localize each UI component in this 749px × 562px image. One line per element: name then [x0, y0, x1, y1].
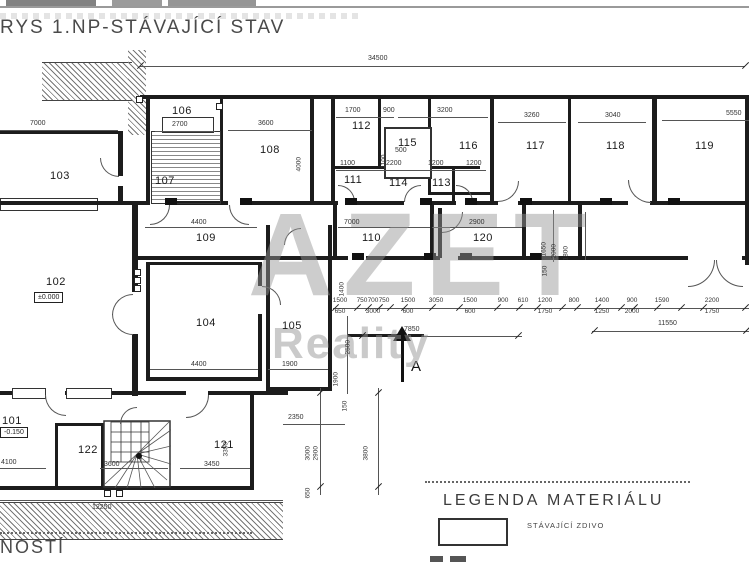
dimension-label: 7850: [404, 326, 420, 333]
dimension-label-vertical: 4000: [297, 157, 304, 171]
dim-line: [578, 122, 646, 123]
dimension-label: 1100: [340, 160, 355, 167]
threshold: [165, 198, 177, 205]
dimension-label: 2700: [172, 121, 188, 128]
dimension-label: 3600: [258, 120, 274, 127]
wall: [310, 98, 314, 203]
chain-dimension: 1500600: [463, 298, 477, 315]
wall: [146, 262, 262, 265]
room-number-label: 102: [46, 276, 66, 288]
dim-line: [662, 120, 749, 121]
door-arc: [628, 180, 651, 203]
threshold: [668, 198, 680, 205]
chain-dimension: 12001750: [538, 298, 552, 315]
marker-square: [116, 490, 123, 497]
dimension-label: 900: [383, 107, 395, 114]
door-arc: [100, 158, 119, 177]
dimension-label-vertical: 1100: [382, 155, 389, 169]
dimension-label-vertical: 1400: [340, 282, 347, 296]
dimension-label: 4100: [1, 459, 17, 466]
dimension-label: 2200: [386, 160, 402, 167]
legend-title: LEGENDA MATERIÁLU: [443, 492, 664, 510]
dim-line: [498, 122, 566, 123]
wall: [146, 98, 150, 203]
wall: [146, 377, 262, 381]
dim-line: [0, 468, 46, 469]
wall: [0, 131, 122, 134]
wall: [55, 423, 104, 426]
dimension-label: 1200: [466, 160, 482, 167]
dimension-label-vertical: 1900: [334, 372, 341, 386]
hatched-wall: [42, 62, 132, 101]
dim-line: [0, 500, 283, 501]
wall: [331, 98, 335, 203]
room-number-label: 120: [473, 232, 493, 244]
room-number-label: 108: [260, 144, 280, 156]
dim-line: [145, 227, 257, 228]
dimension-label: 1900: [282, 361, 298, 368]
room-number-label: 118: [606, 140, 625, 152]
door-arc-double: [688, 260, 715, 287]
dimension-label-vertical: 3350: [224, 442, 231, 456]
room-number-label: 107: [155, 175, 175, 187]
window: [12, 388, 46, 399]
door-arc: [150, 205, 170, 225]
dimension-label-vertical: 2500: [346, 340, 353, 354]
room-number-label: 122: [78, 444, 98, 456]
elevation-marker: -0.150: [0, 427, 28, 438]
door-arc: [186, 395, 209, 418]
dimension-label-vertical: 3000: [306, 446, 313, 460]
dimension-label-vertical: 150: [543, 266, 550, 277]
room-number-label: 104: [196, 317, 216, 329]
marker-square: [216, 103, 223, 110]
dimension-label-vertical: 1650: [542, 242, 549, 256]
door-arc: [120, 407, 137, 424]
dimension-label-vertical: 2000: [552, 244, 559, 258]
staircase-107: [151, 131, 221, 204]
dimension-label: 4400: [191, 361, 207, 368]
ground-hatch: [0, 502, 283, 540]
dim-line: [150, 369, 258, 370]
room-number-label: 111: [344, 174, 362, 186]
dim-line: [336, 117, 394, 118]
bottom-cropped-title: NOSTÍ: [0, 537, 65, 558]
marker-square: [104, 490, 111, 497]
dimension-label-vertical: 3800: [364, 446, 371, 460]
dimension-label: 12250: [92, 504, 111, 511]
legend-item-label: STÁVAJÍCÍ ZDIVO: [527, 521, 604, 530]
room-number-label: 101: [2, 415, 22, 427]
dim-line: [398, 117, 488, 118]
floorplan-canvas: RYS 1.NP-STÁVAJÍCÍ STAV: [0, 0, 749, 562]
room-number-label: 103: [50, 170, 70, 182]
dimension-label: 7000: [30, 120, 46, 127]
dimension-label: 500: [395, 147, 407, 154]
dimension-label: 4400: [191, 219, 207, 226]
dimension-label: 11550: [658, 320, 677, 327]
door-arc: [112, 294, 133, 315]
room-number-label: 106: [172, 105, 192, 117]
room-number-label: 119: [695, 140, 714, 152]
room-number-label: 105: [282, 320, 302, 332]
door-arc: [112, 314, 133, 335]
dimension-label-vertical: 650: [306, 488, 313, 499]
dimension-label-vertical: 1800: [564, 246, 571, 260]
wall: [250, 391, 254, 490]
room-number-label: 116: [459, 140, 478, 152]
room-number-label: 109: [196, 232, 216, 244]
chain-dimension: 22001750: [705, 298, 719, 315]
marker-square: [134, 277, 141, 284]
dim-line: [378, 388, 379, 495]
marker-square: [136, 96, 143, 103]
legend-swatch: [438, 518, 508, 546]
cropped-rule: [0, 6, 749, 8]
wall: [652, 95, 657, 205]
door-arc: [45, 395, 66, 416]
dimension-label: 1700: [345, 107, 361, 114]
marker-square: [134, 285, 141, 292]
dimension-label-vertical: 2900: [314, 446, 321, 460]
room-number-label: 112: [352, 120, 371, 132]
dim-line: [0, 130, 118, 131]
dimension-label: 1200: [428, 160, 444, 167]
door-arc-double: [716, 260, 743, 287]
door-arc: [229, 205, 249, 225]
drawing-title: RYS 1.NP-STÁVAJÍCÍ STAV: [0, 17, 285, 39]
chain-dimension: 9002000: [625, 298, 639, 315]
dim-line: [155, 131, 215, 132]
room-number-label: 114: [389, 177, 408, 189]
dim-line: [592, 331, 749, 332]
dimension-label: 7000: [344, 219, 360, 226]
room-number-label: 110: [362, 232, 381, 244]
marker-square: [134, 269, 141, 276]
cropped-text-fragment: [430, 556, 443, 562]
window: [66, 388, 112, 399]
dimension-label: 5550: [726, 110, 742, 117]
dimension-label: 34500: [368, 55, 387, 62]
cropped-text-fragment: [450, 556, 466, 562]
dimension-label: 3040: [605, 112, 621, 119]
dim-line: [320, 388, 321, 495]
dim-line: [100, 468, 168, 469]
room-115-walls: [384, 127, 432, 179]
dotted-divider: [425, 481, 690, 483]
dim-line: [180, 468, 250, 469]
dim-line: [268, 369, 328, 370]
elevation-marker: ±0.000: [34, 292, 63, 303]
dotted-divider: [0, 532, 252, 534]
threshold: [600, 198, 612, 205]
dimension-label-vertical: 150: [343, 401, 350, 412]
room-number-label: 113: [432, 177, 451, 189]
wall: [146, 262, 150, 380]
dim-line: [140, 66, 745, 67]
dimension-label: 3200: [437, 107, 453, 114]
spiral-staircase: [103, 420, 171, 488]
dim-line: [228, 130, 312, 131]
dimension-label: 3600: [104, 461, 120, 468]
dimension-label: 3450: [204, 461, 220, 468]
room-number-label: 117: [526, 140, 545, 152]
dimension-label: 2350: [288, 414, 304, 421]
wall: [55, 423, 58, 489]
dim-tick: [742, 62, 749, 69]
dim-line: [336, 170, 486, 171]
dimension-label: 3260: [524, 112, 540, 119]
dimension-label: 2900: [469, 219, 485, 226]
dim-line: [283, 424, 345, 425]
